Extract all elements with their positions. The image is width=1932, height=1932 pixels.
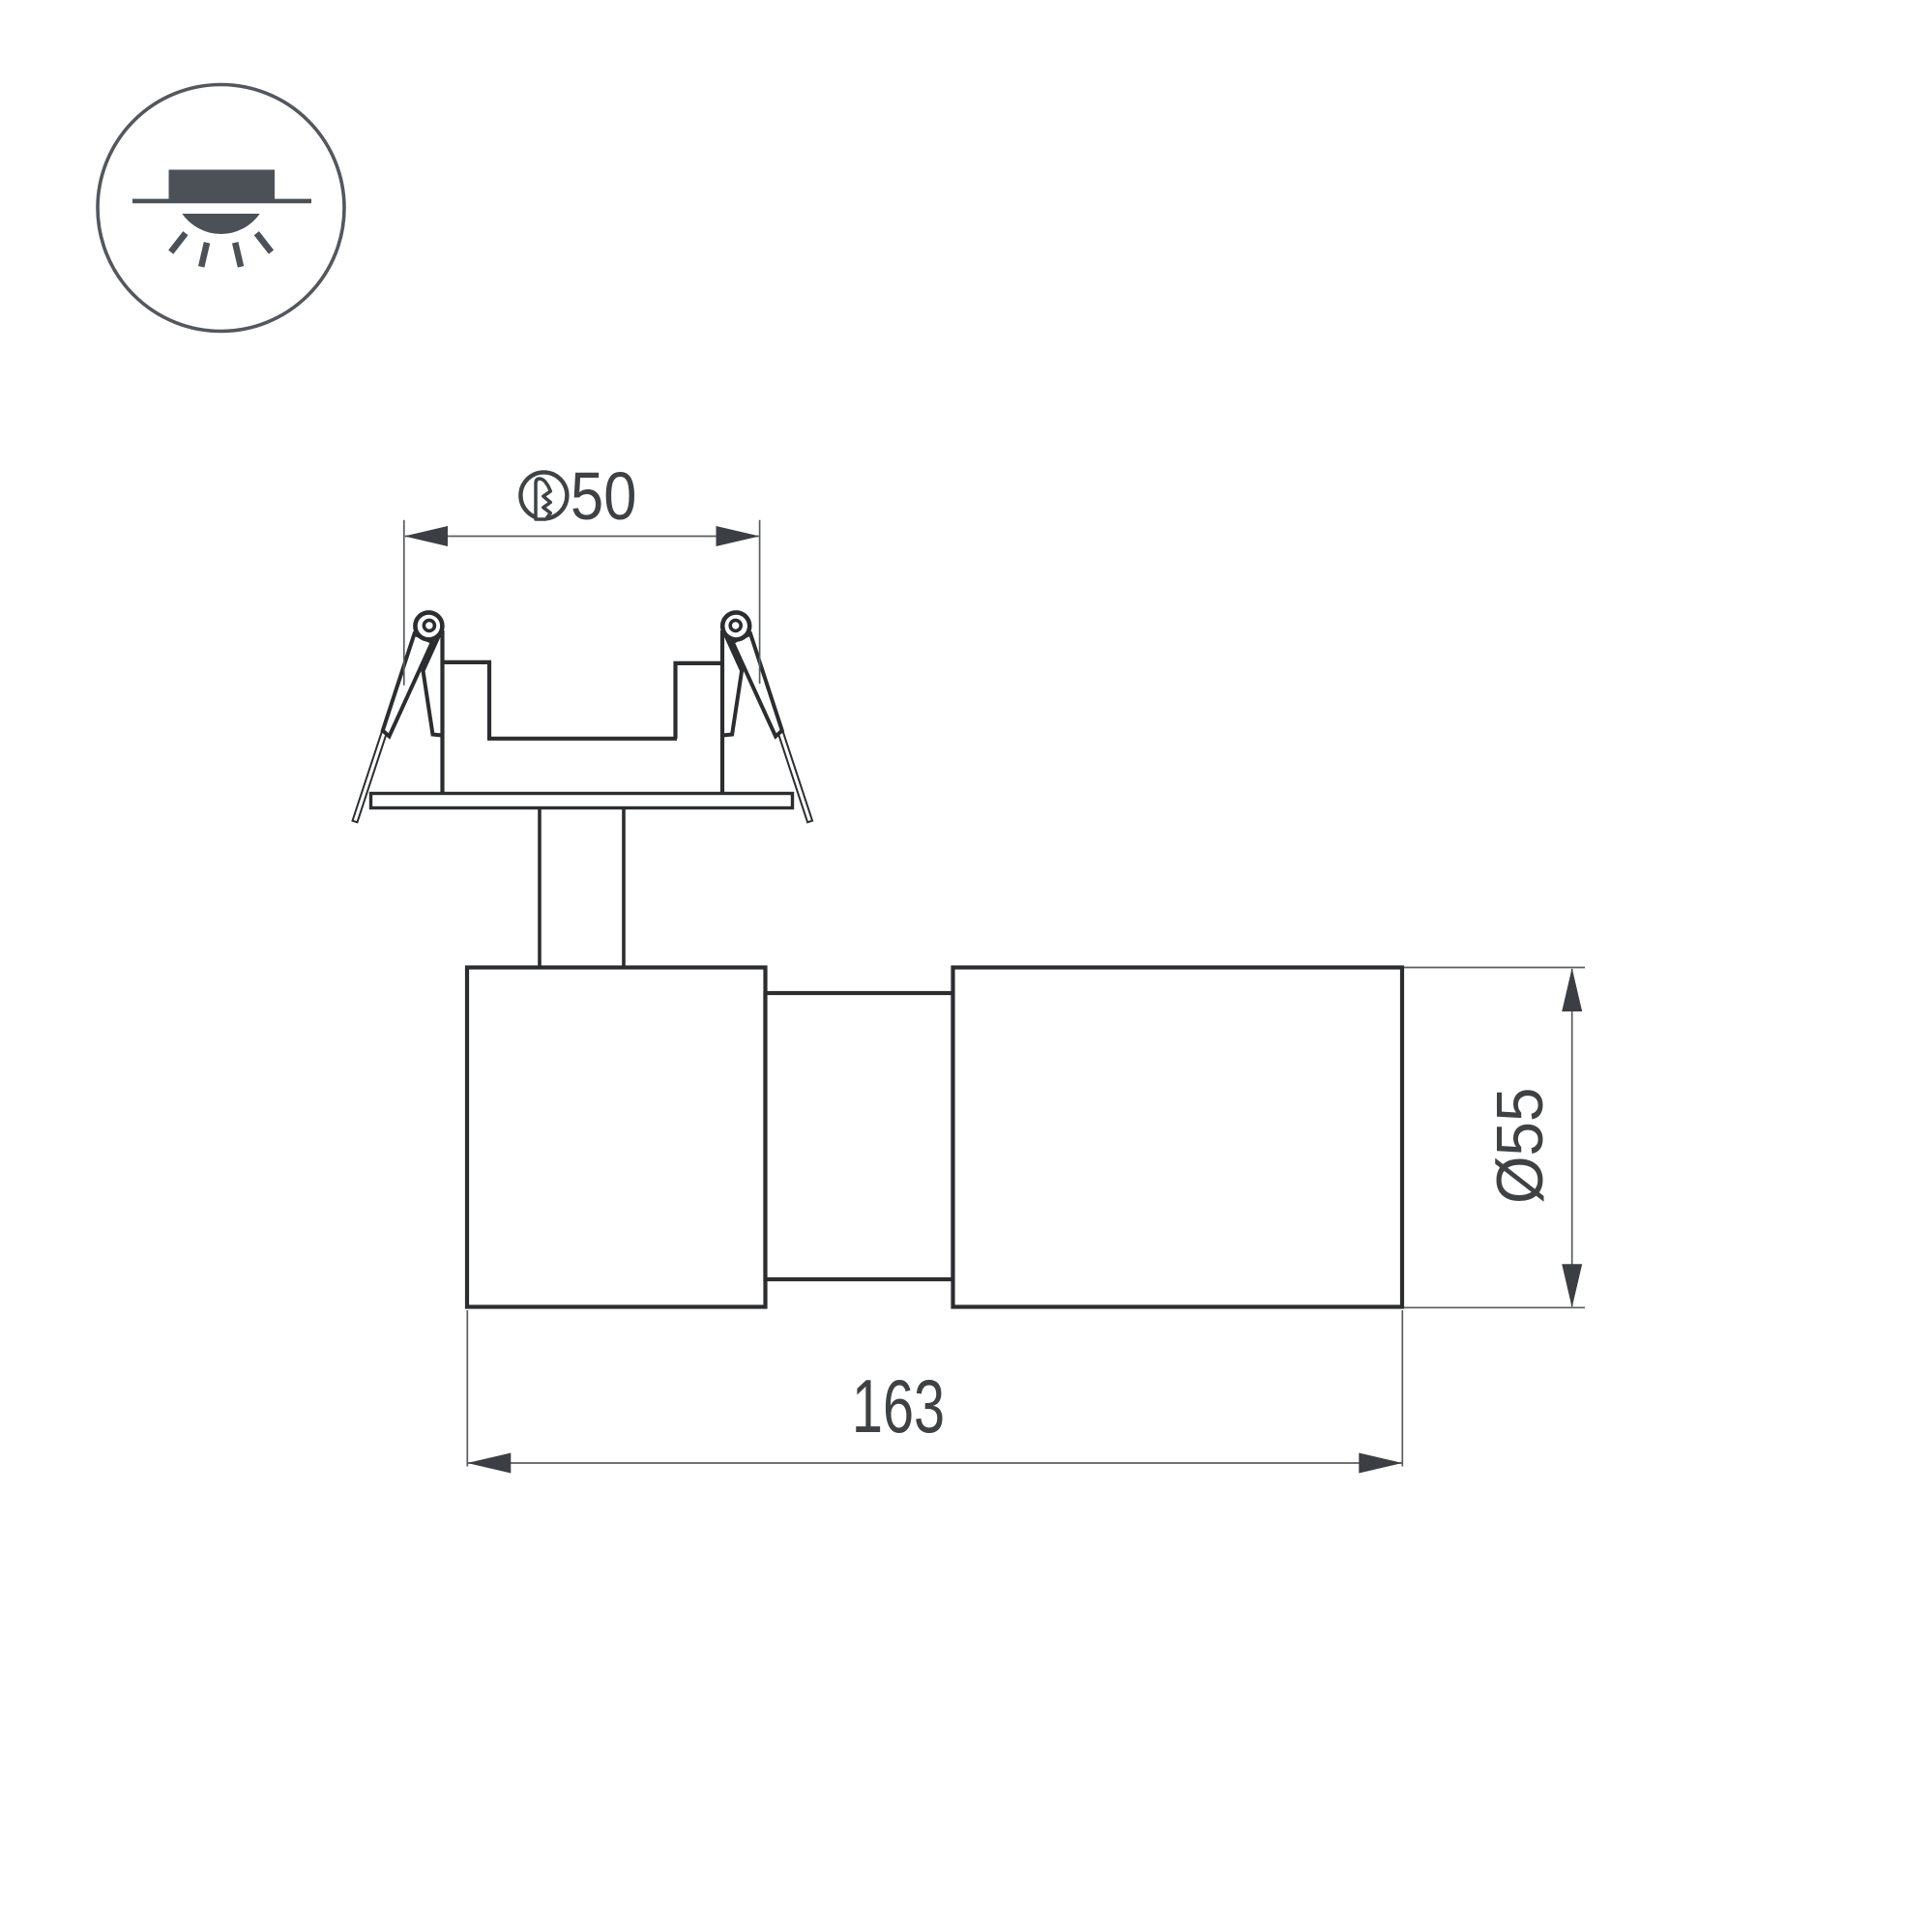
svg-text:163: 163 — [852, 1365, 945, 1449]
svg-text:50: 50 — [571, 459, 636, 534]
svg-text:Ø55: Ø55 — [1482, 1088, 1556, 1204]
